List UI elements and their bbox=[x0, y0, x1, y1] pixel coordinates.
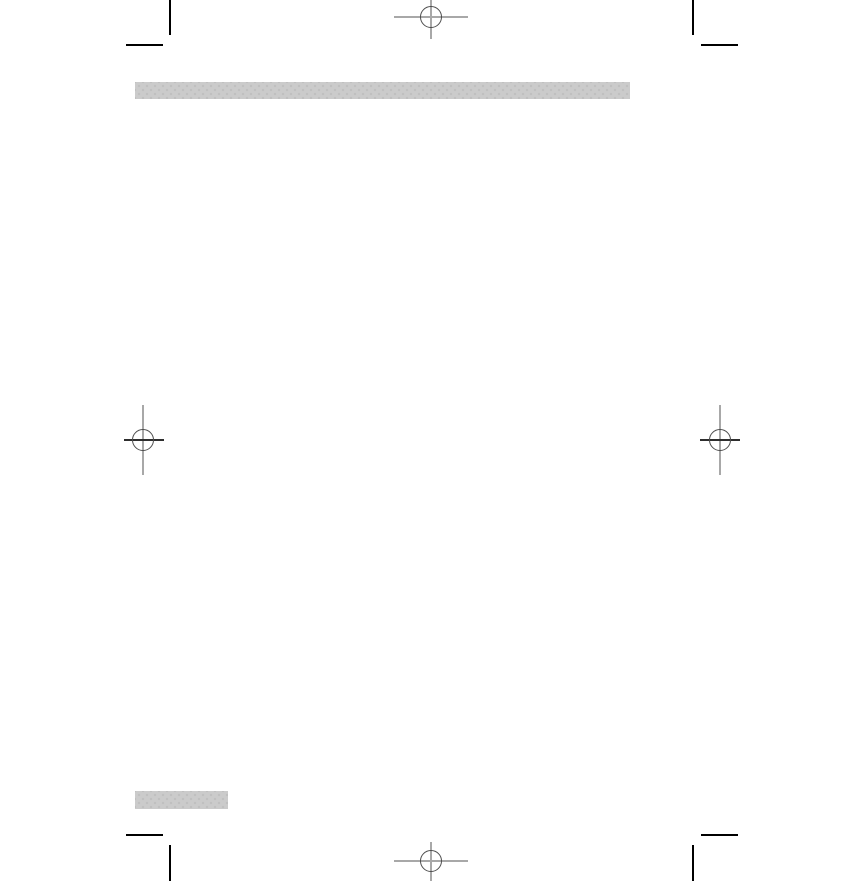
crop-mark-bottom-left-vertical bbox=[169, 845, 171, 881]
registration-circle-icon bbox=[132, 429, 154, 451]
registration-circle-icon bbox=[709, 429, 731, 451]
crop-mark-top-right-vertical bbox=[692, 0, 694, 35]
crop-mark-bottom-right-horizontal bbox=[701, 834, 738, 836]
registration-circle-icon bbox=[420, 850, 442, 872]
print-page bbox=[0, 0, 864, 881]
crop-mark-top-left-vertical bbox=[169, 0, 171, 35]
crop-mark-bottom-right-vertical bbox=[692, 845, 694, 881]
header-placeholder-bar bbox=[135, 82, 630, 99]
registration-circle-icon bbox=[420, 6, 442, 28]
crop-mark-top-right-horizontal bbox=[701, 44, 738, 46]
footer-placeholder-bar bbox=[135, 791, 228, 809]
crop-mark-bottom-left-horizontal bbox=[126, 834, 163, 836]
crop-mark-top-left-horizontal bbox=[126, 44, 163, 46]
